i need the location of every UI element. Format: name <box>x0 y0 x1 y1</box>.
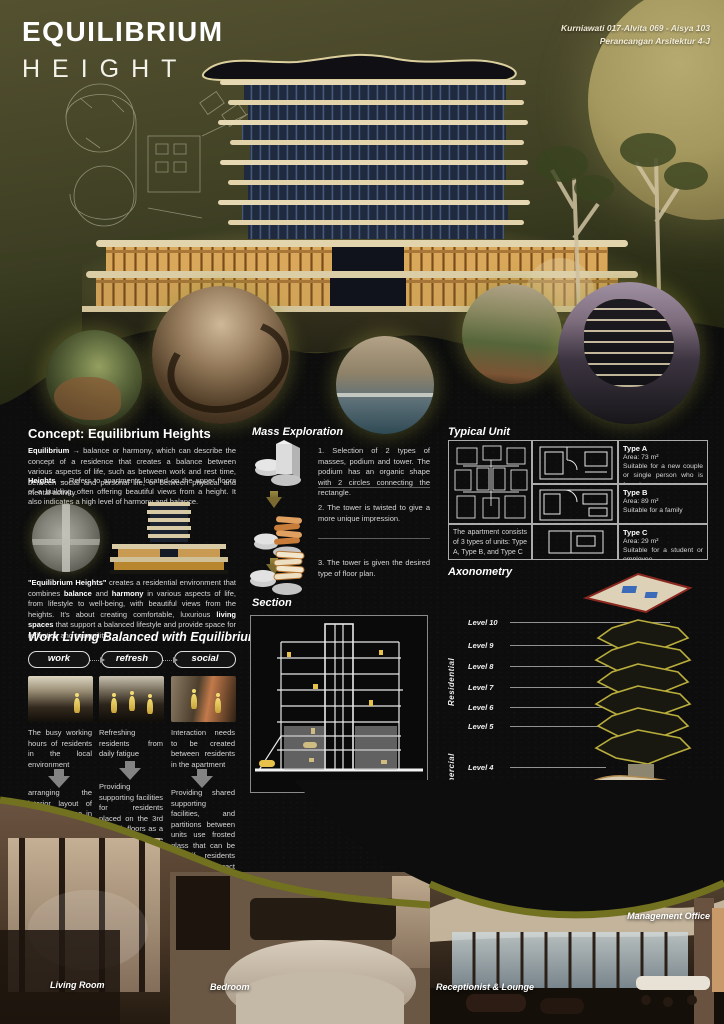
divider <box>318 538 430 539</box>
plan-thumb-type-c <box>532 524 618 560</box>
level-label: Level 9 <box>468 641 510 650</box>
refresh-photo <box>99 676 164 722</box>
site-map-image <box>32 504 100 572</box>
person-figure <box>215 698 221 713</box>
building-elevation-image <box>110 500 228 574</box>
pill-connector-1 <box>90 660 101 661</box>
callout-pool-balcony <box>336 336 434 434</box>
bottom-photo-collage <box>0 780 724 1024</box>
type-c-info: Type C Area: 29 m² Suitable for a studen… <box>618 524 708 560</box>
type-c-area: Area: 29 m² <box>623 537 703 546</box>
divider <box>318 487 430 488</box>
callout-interior-ramp <box>152 286 290 424</box>
type-c-desc: Suitable for a student or employee <box>623 546 703 560</box>
section-heading: Section <box>252 597 292 609</box>
living-room-label: Living Room <box>50 980 105 990</box>
typical-unit-caption: The apartment consists of 3 types of uni… <box>453 528 527 557</box>
typical-unit-floorplan <box>448 440 532 524</box>
mass-step3-image <box>250 545 310 595</box>
level-label: Level 6 <box>468 703 510 712</box>
person-figure <box>111 698 117 713</box>
plan-thumb-type-a <box>532 440 618 484</box>
bedroom-label: Bedroom <box>210 982 250 992</box>
author-credits: Kurniawati 017-Alvita 069 - Aisya 103 Pe… <box>561 22 710 48</box>
level-label: Level 4 <box>468 763 510 772</box>
type-b-name: Type B <box>623 488 703 497</box>
pill-social: social <box>174 651 236 668</box>
poster-title-line2: HEIGHT <box>22 55 224 84</box>
type-a-area: Area: 73 m² <box>623 453 703 462</box>
credits-line1: Kurniawati 017-Alvita 069 - Aisya 103 <box>561 22 710 35</box>
person-figure <box>147 699 153 714</box>
level-label: Level 10 <box>468 618 510 627</box>
typical-unit-heading: Typical Unit <box>448 426 510 438</box>
type-b-info: Type B Area: 89 m² Suitable for a family <box>618 484 708 524</box>
down-arrow-icon <box>119 768 141 780</box>
type-a-name: Type A <box>623 444 703 453</box>
level-label: Level 5 <box>468 722 510 731</box>
social-photo <box>171 676 236 722</box>
work-col-top: The busy working hours of residents in t… <box>28 728 92 770</box>
refresh-col-top: Refreshing residents from daily fatigue <box>99 728 163 760</box>
pill-connector-2 <box>163 660 174 661</box>
pill-refresh: refresh <box>101 651 163 668</box>
type-c-name: Type C <box>623 528 703 537</box>
plan-thumb-type-b <box>532 484 618 524</box>
presentation-board: EQUILIBRIUM HEIGHT Kurniawati 017-Alvita… <box>0 0 724 1024</box>
axon-group-residential: Residential <box>447 630 456 734</box>
mass-step2-text: 2. The tower is twisted to give a more u… <box>318 503 430 524</box>
type-a-info: Type A Area: 73 m² Suitable for a new co… <box>618 440 708 484</box>
person-figure <box>129 696 135 711</box>
type-b-desc: Suitable for a family <box>623 506 703 515</box>
management-office-label: Management Office <box>626 910 710 923</box>
typical-unit-caption-cell: The apartment consists of 3 types of uni… <box>448 524 532 560</box>
credits-line2: Perancangan Arsitektur 4-J <box>561 35 710 48</box>
receptionist-label: Receptionist & Lounge <box>436 982 534 992</box>
down-arrow-icon <box>266 497 282 508</box>
typical-unit-table: Type A Area: 73 m² Suitable for a new co… <box>448 440 708 560</box>
work-photo <box>28 676 93 722</box>
person-figure <box>191 694 197 709</box>
mass-step3-text: 3. The tower is given the desired type o… <box>318 558 430 579</box>
level-label: Level 8 <box>468 662 510 671</box>
type-b-area: Area: 89 m² <box>623 497 703 506</box>
person-figure <box>74 698 80 713</box>
callout-exterior-dusk <box>558 282 700 424</box>
poster-title-line1: EQUILIBRIUM <box>22 16 224 48</box>
callout-garden-terrace <box>46 330 142 426</box>
mass-step1-text: 1. Selection of 2 types of masses, podiu… <box>318 446 430 499</box>
level-label: Level 7 <box>468 683 510 692</box>
section-drawing <box>250 615 428 793</box>
mass-exploration-heading: Mass Exploration <box>252 426 343 438</box>
social-col-top: Interaction needs to be created between … <box>171 728 235 770</box>
pill-work: work <box>28 651 90 668</box>
concept-heading: Concept: Equilibrium Heights <box>28 426 211 441</box>
axonometry-heading: Axonometry <box>448 566 512 578</box>
type-a-desc: Suitable for a new couple or single pers… <box>623 462 703 484</box>
callout-roof-garden <box>462 284 562 384</box>
mass-step1-image <box>254 440 306 486</box>
